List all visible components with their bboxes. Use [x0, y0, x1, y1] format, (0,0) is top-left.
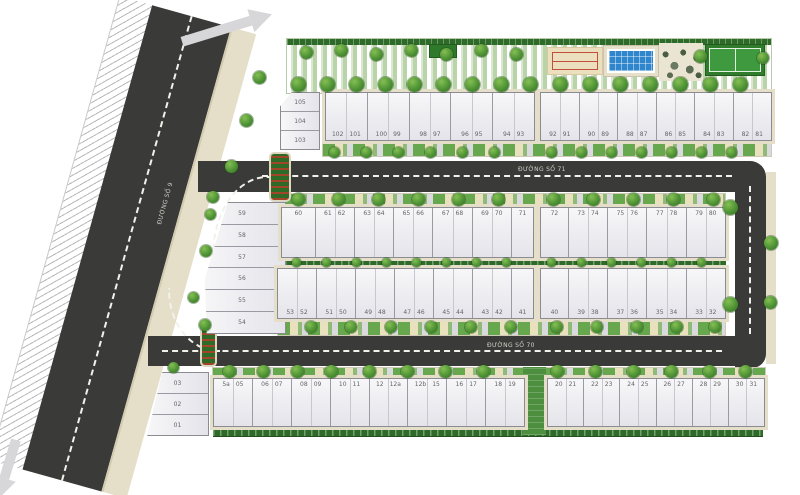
- lot-unit-08-09[interactable]: 0809: [292, 379, 331, 426]
- tree-icon: [407, 77, 422, 92]
- lot-unit-103[interactable]: 103: [281, 131, 319, 149]
- lot-number: 2021: [555, 381, 576, 388]
- lot-number: 1011: [339, 381, 360, 388]
- tree-icon: [345, 321, 357, 333]
- tree-icon: [697, 258, 706, 267]
- lot-unit-39-38[interactable]: 3938: [569, 269, 608, 318]
- lot-unit-63-64[interactable]: 6364: [355, 208, 394, 257]
- tree-icon: [425, 321, 437, 333]
- lot-number: 02: [174, 401, 182, 408]
- lot-unit-18-19[interactable]: 1819: [486, 379, 524, 426]
- lot-number: 103: [294, 137, 305, 144]
- tree-icon: [477, 365, 490, 378]
- tree-icon: [168, 362, 179, 373]
- tree-icon: [292, 193, 305, 206]
- tree-icon: [199, 319, 211, 331]
- lot-unit-82-81[interactable]: 8281: [734, 93, 772, 140]
- tree-icon: [703, 365, 716, 378]
- tree-icon: [352, 258, 361, 267]
- tree-icon: [253, 71, 266, 84]
- lot-number: 104: [294, 118, 305, 125]
- lot-unit-47-46[interactable]: 4746: [395, 269, 434, 318]
- lot-number: 3938: [577, 309, 598, 316]
- lot-unit-12-12a[interactable]: 1212a: [370, 379, 409, 426]
- tree-icon: [300, 46, 313, 59]
- tree-icon: [665, 365, 678, 378]
- tree-icon: [553, 77, 568, 92]
- lot-unit-16-17[interactable]: 1617: [447, 379, 486, 426]
- tree-icon: [361, 147, 372, 158]
- tree-icon: [372, 193, 385, 206]
- tree-icon: [335, 44, 348, 57]
- lot-unit-102-101[interactable]: 102101: [326, 93, 368, 140]
- tree-icon: [207, 191, 219, 203]
- block-top-b: 929190898887868584838281: [540, 92, 772, 141]
- lot-number: 6768: [442, 210, 463, 217]
- road-70-label: ĐƯỜNG SỐ 70: [487, 342, 535, 349]
- lot-unit-43-42[interactable]: 4342: [473, 269, 512, 318]
- lot-unit-41[interactable]: 41: [512, 269, 533, 318]
- tree-icon: [349, 77, 364, 92]
- tree-icon: [505, 321, 517, 333]
- arrow-shaft: [0, 439, 21, 480]
- lot-number: 8281: [742, 131, 763, 138]
- lot-number: 2425: [627, 381, 648, 388]
- lot-unit-69-70[interactable]: 6970: [473, 208, 512, 257]
- master-plan: ĐƯỜNG SỐ 9 ĐƯỜNG SỐ 71 ĐƯỜNG SỐ 70 10510…: [0, 0, 800, 495]
- tree-icon: [412, 193, 425, 206]
- lot-number: 56: [238, 275, 246, 282]
- lot-unit-94-93[interactable]: 9493: [493, 93, 534, 140]
- right-sidewalk: [766, 172, 776, 364]
- tree-icon: [452, 193, 465, 206]
- lot-number: 55: [238, 297, 246, 304]
- tree-icon: [764, 296, 777, 309]
- tree-icon: [703, 77, 718, 92]
- lot-unit-73-74[interactable]: 7374: [569, 208, 608, 257]
- lot-unit-22-23[interactable]: 2223: [584, 379, 620, 426]
- block-mid-upper-a: 606162636465666768697071: [281, 207, 534, 258]
- pool-deck: [603, 45, 659, 77]
- tree-icon: [412, 258, 421, 267]
- tree-icon: [739, 365, 752, 378]
- tree-icon: [332, 193, 345, 206]
- tree-icon: [291, 365, 304, 378]
- lot-unit-61-62[interactable]: 6162: [316, 208, 355, 257]
- lot-number: 4342: [481, 309, 502, 316]
- tree-icon: [709, 321, 721, 333]
- lot-unit-33-32[interactable]: 3332: [687, 269, 725, 318]
- lot-unit-96-95[interactable]: 9695: [451, 93, 493, 140]
- lot-number: 3736: [617, 309, 638, 316]
- lot-unit-71[interactable]: 71: [512, 208, 533, 257]
- lot-number: 12b15: [415, 381, 440, 388]
- lot-unit-10-11[interactable]: 1011: [331, 379, 370, 426]
- tree-icon: [401, 365, 414, 378]
- tree-icon: [733, 77, 748, 92]
- lot-unit-51-50[interactable]: 5150: [317, 269, 356, 318]
- lot-number: 6970: [481, 210, 502, 217]
- tree-icon: [707, 193, 720, 206]
- lot-number: 4544: [442, 309, 463, 316]
- tree-icon: [587, 193, 600, 206]
- tree-icon: [393, 147, 404, 158]
- tree-icon: [291, 77, 306, 92]
- lot-number: 3031: [736, 381, 757, 388]
- lot-number: 03: [174, 380, 182, 387]
- tree-icon: [320, 77, 335, 92]
- arrow-head: [247, 3, 275, 32]
- lot-unit-84-83[interactable]: 8483: [695, 93, 734, 140]
- lot-unit-12b-15[interactable]: 12b15: [408, 379, 447, 426]
- tree-icon: [667, 193, 680, 206]
- lot-number: 71: [519, 210, 527, 217]
- tree-icon: [257, 365, 270, 378]
- tree-icon: [667, 258, 676, 267]
- lot-number: 2829: [700, 381, 721, 388]
- lot-number: 8685: [665, 131, 686, 138]
- lot-number: 41: [519, 309, 527, 316]
- tree-icon: [188, 292, 199, 303]
- tree-icon: [589, 365, 602, 378]
- lot-unit-86-85[interactable]: 8685: [657, 93, 696, 140]
- tree-icon: [440, 48, 453, 61]
- tree-icon: [465, 77, 480, 92]
- lot-number: 54: [238, 319, 246, 326]
- tree-icon: [465, 321, 477, 333]
- lot-unit-79-80[interactable]: 7980: [687, 208, 725, 257]
- tree-icon: [370, 48, 383, 61]
- lot-number: 40: [551, 309, 559, 316]
- lot-unit-49-48[interactable]: 4948: [356, 269, 395, 318]
- tree-icon: [613, 77, 628, 92]
- pool-icon: [607, 49, 655, 73]
- lot-number: 9695: [461, 131, 482, 138]
- lot-unit-02[interactable]: 02: [147, 394, 208, 415]
- tree-icon: [382, 258, 391, 267]
- tree-icon: [636, 147, 647, 158]
- tree-icon: [225, 160, 238, 173]
- lot-unit-45-44[interactable]: 4544: [434, 269, 473, 318]
- tree-icon: [325, 365, 338, 378]
- tree-icon: [723, 297, 738, 312]
- lot-number: 3332: [695, 309, 716, 316]
- block-mid-upper-b: 727374757677787980: [540, 207, 726, 258]
- lot-unit-06-07[interactable]: 0607: [253, 379, 292, 426]
- block-mid-lower-a: 53525150494847464544434241: [277, 268, 534, 319]
- tree-icon: [671, 321, 683, 333]
- lot-unit-24-25[interactable]: 2425: [620, 379, 656, 426]
- lot-number: 1617: [456, 381, 477, 388]
- tree-icon: [546, 147, 557, 158]
- lot-unit-88-87[interactable]: 8887: [618, 93, 657, 140]
- block-bottom-a: 5a050607080910111212a12b1516171819: [213, 378, 525, 427]
- tree-icon: [591, 321, 603, 333]
- lot-number: 7576: [617, 210, 638, 217]
- tree-icon: [523, 77, 538, 92]
- tree-icon: [577, 258, 586, 267]
- lot-number: 5a05: [222, 381, 243, 388]
- tree-icon: [472, 258, 481, 267]
- tree-icon: [492, 193, 505, 206]
- tree-icon: [425, 147, 436, 158]
- tree-icon: [292, 258, 301, 267]
- lot-unit-26-27[interactable]: 2627: [657, 379, 693, 426]
- lot-number: 102101: [332, 131, 361, 138]
- tree-icon: [363, 365, 376, 378]
- lot-unit-40[interactable]: 40: [541, 269, 569, 318]
- lot-unit-98-97[interactable]: 9897: [410, 93, 452, 140]
- lot-unit-37-36[interactable]: 3736: [608, 269, 647, 318]
- tree-icon: [405, 44, 418, 57]
- tree-icon: [673, 77, 688, 92]
- lot-number: 6162: [324, 210, 345, 217]
- lot-unit-55[interactable]: 55: [199, 290, 285, 312]
- lot-unit-92-91[interactable]: 9291: [541, 93, 580, 140]
- junction-median-top: [269, 152, 291, 202]
- tree-icon: [489, 147, 500, 158]
- road-70-centerline: [162, 350, 722, 352]
- tree-icon: [439, 365, 452, 378]
- tree-icon: [627, 193, 640, 206]
- block-bottom-b: 202122232425262728293031: [547, 378, 765, 427]
- lot-unit-90-89[interactable]: 9089: [580, 93, 619, 140]
- tree-icon: [607, 258, 616, 267]
- lot-number: 9897: [419, 131, 440, 138]
- tree-icon: [551, 321, 563, 333]
- lot-unit-53-52[interactable]: 5352: [278, 269, 317, 318]
- lot-number: 0607: [261, 381, 282, 388]
- lot-number: 6566: [403, 210, 424, 217]
- lot-number: 9493: [503, 131, 524, 138]
- lot-unit-72[interactable]: 72: [541, 208, 569, 257]
- lot-unit-28-29[interactable]: 2829: [693, 379, 729, 426]
- block-top-a: 10210110099989796959493: [325, 92, 535, 141]
- lot-number: 59: [238, 210, 246, 217]
- lot-number: 7374: [577, 210, 598, 217]
- tree-icon: [510, 48, 523, 61]
- tree-icon: [576, 147, 587, 158]
- tree-icon: [606, 147, 617, 158]
- lot-number: 2627: [663, 381, 684, 388]
- lot-number: 0809: [300, 381, 321, 388]
- lot-number: 72: [551, 210, 559, 217]
- road-71-centerline: [262, 175, 732, 177]
- tree-icon: [494, 77, 509, 92]
- tree-icon: [457, 147, 468, 158]
- lot-unit-60[interactable]: 60: [282, 208, 316, 257]
- lot-number: 7980: [695, 210, 716, 217]
- lot-number: 1212a: [376, 381, 401, 388]
- lot-number: 58: [238, 232, 246, 239]
- lot-number: 8887: [626, 131, 647, 138]
- lot-number: 2223: [591, 381, 612, 388]
- tree-icon: [547, 258, 556, 267]
- tree-icon: [378, 77, 393, 92]
- sport-court-icon: [547, 47, 603, 75]
- tree-icon: [305, 321, 317, 333]
- road-right-centerline: [749, 186, 751, 334]
- lot-number: 7778: [656, 210, 677, 217]
- tree-icon: [547, 193, 560, 206]
- tree-icon: [764, 236, 778, 250]
- tree-icon: [223, 365, 236, 378]
- lot-unit-01[interactable]: 01: [147, 415, 208, 435]
- lot-unit-56[interactable]: 56: [199, 268, 285, 290]
- tree-icon: [694, 50, 707, 63]
- lot-number: 9291: [549, 131, 570, 138]
- tree-icon: [723, 200, 738, 215]
- lot-number: 8483: [703, 131, 724, 138]
- tree-icon: [329, 147, 340, 158]
- green-alley: [523, 367, 546, 435]
- block-top-left: 105104103: [280, 92, 320, 150]
- lot-number: 3534: [656, 309, 677, 316]
- tree-icon: [696, 147, 707, 158]
- tree-icon: [442, 258, 451, 267]
- hedge-strip: [213, 426, 763, 437]
- lot-unit-5a-05[interactable]: 5a05: [214, 379, 253, 426]
- tree-icon: [475, 44, 488, 57]
- tree-icon: [643, 77, 658, 92]
- block-mid-left: 595857565554: [198, 202, 286, 334]
- lot-unit-20-21[interactable]: 2021: [548, 379, 584, 426]
- lot-unit-77-78[interactable]: 7778: [647, 208, 686, 257]
- tree-icon: [583, 77, 598, 92]
- tree-icon: [385, 321, 397, 333]
- lot-unit-65-66[interactable]: 6566: [394, 208, 433, 257]
- tree-icon: [631, 321, 643, 333]
- tree-icon: [240, 114, 253, 127]
- lot-number: 1819: [494, 381, 515, 388]
- lot-unit-30-31[interactable]: 3031: [729, 379, 764, 426]
- tree-icon: [637, 258, 646, 267]
- tree-icon: [205, 209, 216, 220]
- tree-icon: [551, 365, 564, 378]
- lot-number: 57: [238, 254, 246, 261]
- lot-number: 9089: [588, 131, 609, 138]
- lot-unit-75-76[interactable]: 7576: [608, 208, 647, 257]
- tree-icon: [726, 147, 737, 158]
- lot-unit-104[interactable]: 104: [281, 112, 319, 131]
- lot-unit-105[interactable]: 105: [281, 93, 319, 112]
- lot-number: 105: [294, 99, 305, 106]
- lot-number: 10099: [376, 131, 401, 138]
- lot-number: 01: [174, 422, 182, 429]
- lawn-court-icon: [705, 44, 765, 76]
- tree-icon: [627, 365, 640, 378]
- court-lines: [709, 48, 761, 72]
- court-lines: [552, 52, 598, 70]
- tree-icon: [200, 245, 212, 257]
- lot-unit-54[interactable]: 54: [199, 312, 285, 333]
- lot-unit-35-34[interactable]: 3534: [647, 269, 686, 318]
- tree-icon: [502, 258, 511, 267]
- lot-number: 6364: [363, 210, 384, 217]
- lot-number: 5150: [325, 309, 346, 316]
- road-71-label: ĐƯỜNG SỐ 71: [518, 166, 566, 173]
- lot-unit-67-68[interactable]: 6768: [433, 208, 472, 257]
- tree-icon: [757, 52, 769, 64]
- tree-icon: [436, 77, 451, 92]
- lot-number: 4746: [403, 309, 424, 316]
- lot-number: 4948: [364, 309, 385, 316]
- tree-icon: [322, 258, 331, 267]
- lot-number: 5352: [286, 309, 307, 316]
- lot-unit-100-99[interactable]: 10099: [368, 93, 410, 140]
- tree-icon: [666, 147, 677, 158]
- lot-number: 60: [294, 210, 302, 217]
- block-mid-lower-b: 403938373635343332: [540, 268, 726, 319]
